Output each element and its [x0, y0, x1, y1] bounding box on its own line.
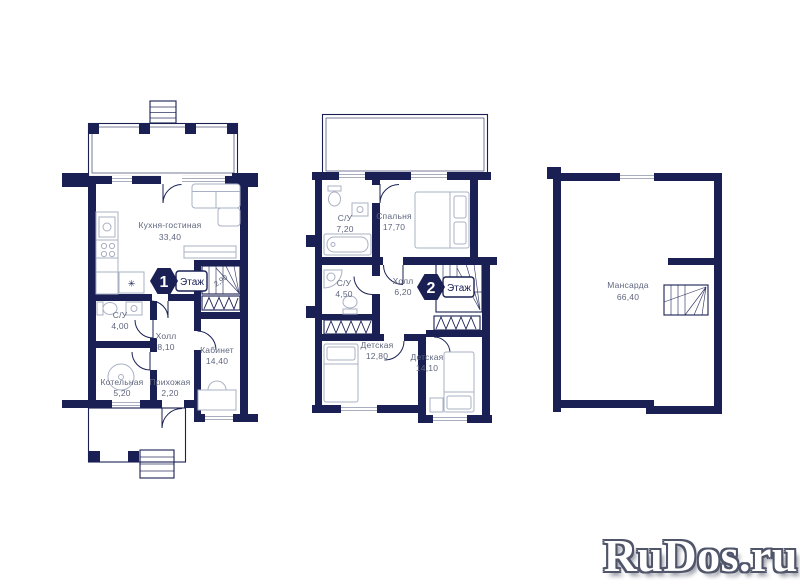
floor1-exterior-stair	[150, 101, 176, 123]
room-name: Котельная	[101, 377, 144, 387]
floor2-closet	[324, 320, 374, 334]
floor2-balcony	[323, 115, 488, 175]
room-label-hall-2: Холл 6,20	[393, 276, 414, 297]
room-name: Кухня-гостиная	[139, 220, 202, 230]
floor1-terrace	[88, 123, 238, 177]
watermark-logo: RuDos.ru	[604, 533, 798, 579]
room-name: Прихожая	[150, 377, 191, 387]
room-name: Холл	[393, 276, 414, 286]
room-name: Детская	[411, 352, 444, 362]
floor1-kitchen: ✳	[96, 212, 144, 294]
room-label-hall-1: Холл 8,10	[156, 331, 177, 352]
room-area: 12,80	[366, 351, 388, 361]
room-name: С/У	[337, 278, 352, 288]
mansard-window	[620, 173, 654, 181]
room-area: 66,40	[617, 292, 639, 302]
room-name: Детская	[361, 340, 394, 350]
floor2-bed-child-left	[324, 344, 358, 402]
room-name: Кабинет	[200, 345, 234, 355]
room-label-bedroom: Спальня 17,70	[376, 211, 412, 232]
room-name: С/У	[113, 310, 128, 320]
room-name: С/У	[338, 213, 353, 223]
stair-dimension: 2,90	[212, 273, 229, 289]
room-area: 4,00	[111, 321, 128, 331]
room-area: 8,10	[157, 342, 174, 352]
room-area: 33,40	[159, 232, 181, 242]
room-label-wc-mid: С/У 4,50	[335, 278, 352, 299]
floor-number: 1	[160, 274, 169, 291]
room-area: 4,50	[335, 289, 352, 299]
room-area: 5,20	[113, 388, 130, 398]
mansard-stairs	[664, 285, 708, 315]
floor1-porch	[89, 408, 186, 478]
room-label-child-right: Детская 14,10	[411, 352, 444, 373]
room-label-wc-1: С/У 4,00	[111, 310, 128, 331]
room-name: Спальня	[376, 211, 412, 221]
room-label-mansard: Мансарда 66,40	[607, 280, 648, 302]
room-label-study: Кабинет 14,40	[200, 345, 234, 366]
floor2-bed-master	[415, 192, 469, 248]
room-area: 6,20	[394, 287, 411, 297]
room-label-wc-top: С/У 7,20	[336, 213, 353, 234]
room-label-boiler-room: Котельная 5,20	[101, 377, 144, 398]
room-area: 2,20	[161, 388, 178, 398]
room-label-child-left: Детская 12,80	[361, 340, 394, 361]
plan-floor-2: С/У 7,20 Спальня 17,70 С/У 4,50 Холл 6,2…	[306, 115, 497, 424]
room-area: 17,70	[383, 222, 405, 232]
room-area: 7,20	[336, 224, 353, 234]
room-name: Мансарда	[607, 280, 648, 290]
fridge: ✳	[119, 272, 144, 293]
floorplan-page: ✳	[0, 0, 800, 583]
room-label-kitchen-living: Кухня-гостиная 33,40	[139, 220, 202, 242]
plan-floor-1: ✳	[62, 101, 258, 478]
floor-label: Этаж	[447, 283, 471, 294]
room-name: Холл	[156, 331, 177, 341]
floor-1-badge: 1 Этаж	[150, 268, 207, 294]
floor-label: Этаж	[180, 277, 204, 288]
plan-mansard: Мансарда 66,40	[547, 167, 722, 414]
fridge-snowflake-icon: ✳	[128, 279, 136, 289]
floorplan-drawing: ✳	[0, 0, 800, 583]
floor-number: 2	[427, 280, 436, 297]
room-area: 14,40	[206, 356, 228, 366]
floor1-desk-chair	[198, 381, 236, 410]
floor-2-badge: 2 Этаж	[417, 274, 474, 300]
room-area: 14,10	[416, 363, 438, 373]
floor1-tv-bench	[184, 246, 236, 258]
